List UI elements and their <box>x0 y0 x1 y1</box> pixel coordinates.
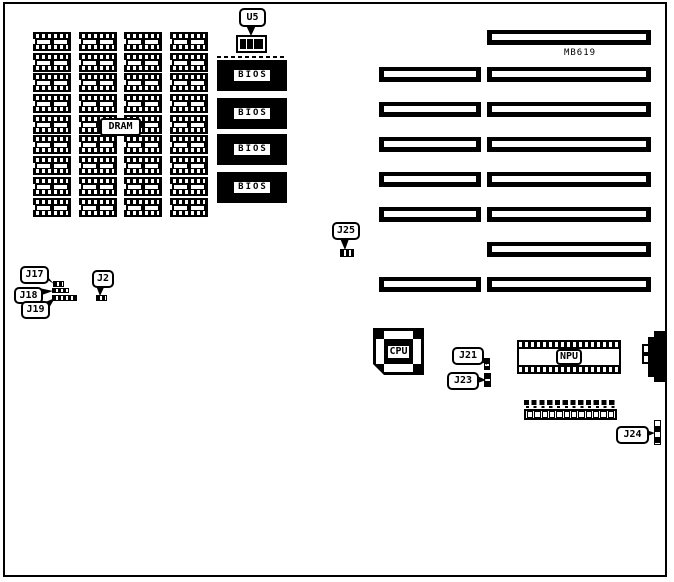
power-connector-pins <box>524 400 617 405</box>
npu-pins-bottom <box>519 367 619 372</box>
bios-label: BIOS <box>234 70 270 81</box>
dram-chip <box>124 73 162 92</box>
power-connector-socket <box>534 411 540 418</box>
cpu-corner <box>376 331 384 339</box>
dram-chip <box>33 198 71 217</box>
dram-chip <box>170 115 208 134</box>
power-connector-socket <box>586 411 592 418</box>
dram-chip <box>170 177 208 196</box>
expansion-slot <box>487 67 651 82</box>
expansion-slot <box>379 207 481 222</box>
dram-chip <box>79 73 117 92</box>
dram-chip <box>33 156 71 175</box>
expansion-slot <box>379 67 481 82</box>
dram-chip <box>124 198 162 217</box>
dram-chip <box>79 198 117 217</box>
dram-chip <box>79 156 117 175</box>
cpu-corner <box>413 364 421 372</box>
power-connector <box>524 400 617 420</box>
dram-chip <box>79 135 117 154</box>
cpu-corner <box>413 331 421 339</box>
dram-chip <box>124 135 162 154</box>
expansion-slot <box>379 137 481 152</box>
bios-chip: BIOS <box>217 134 287 165</box>
jumper-j18 <box>52 288 69 293</box>
expansion-slot <box>379 102 481 117</box>
bios-label: BIOS <box>234 182 270 193</box>
model-label: MB619 <box>552 49 608 58</box>
dram-chip <box>33 177 71 196</box>
dram-chip <box>33 94 71 113</box>
npu-body: NPU <box>519 349 619 365</box>
cpu-label: CPU <box>388 346 408 358</box>
jumper-label-j25: J25 <box>332 222 360 240</box>
bios-label: BIOS <box>234 108 270 119</box>
jumper-j24 <box>654 420 661 445</box>
power-connector-sockets <box>524 409 617 420</box>
power-connector-socket <box>542 411 548 418</box>
dram-chip <box>79 177 117 196</box>
dram-chip <box>124 94 162 113</box>
dram-chip <box>124 156 162 175</box>
expansion-slot <box>487 102 651 117</box>
dram-chip <box>170 94 208 113</box>
dram-chip <box>170 156 208 175</box>
keyboard-connector-pin <box>642 354 650 364</box>
expansion-slot <box>487 277 651 292</box>
jumper-label-j23: J23 <box>447 372 479 390</box>
bios-chip: BIOS <box>217 172 287 203</box>
keyboard-connector <box>654 376 666 382</box>
npu-pins-top <box>519 342 619 347</box>
expansion-slot <box>487 30 651 45</box>
power-connector-socket <box>527 411 533 418</box>
dram-label: DRAM <box>100 118 141 136</box>
dram-chip <box>79 32 117 51</box>
expansion-slot <box>379 277 481 292</box>
dram-chip <box>33 32 71 51</box>
jumper-label-j17: J17 <box>20 266 49 284</box>
jumper-j2 <box>96 295 107 301</box>
dram-chip <box>33 73 71 92</box>
dram-chip <box>170 53 208 72</box>
power-connector-socket <box>600 411 606 418</box>
jumper-label-j19: J19 <box>21 301 50 319</box>
jumper-j21 <box>484 358 490 370</box>
jumper-label-j21: J21 <box>452 347 484 365</box>
npu-label: NPU <box>556 349 582 365</box>
cpu-body: CPU <box>384 339 413 364</box>
power-connector-socket <box>556 411 562 418</box>
bios-label: BIOS <box>234 144 270 155</box>
dram-chip <box>170 198 208 217</box>
dram-chip <box>79 53 117 72</box>
expansion-slot <box>487 172 651 187</box>
expansion-slot <box>487 242 651 257</box>
power-connector-socket <box>593 411 599 418</box>
power-connector-socket <box>608 411 614 418</box>
keyboard-connector-pin <box>642 344 650 354</box>
expansion-slot <box>379 172 481 187</box>
power-connector-socket <box>549 411 555 418</box>
dram-chip <box>124 177 162 196</box>
dram-chip <box>33 135 71 154</box>
cpu-chip: CPU <box>373 328 424 375</box>
jumper-j17 <box>53 281 64 287</box>
u5-block <box>240 39 246 49</box>
dram-chip <box>170 73 208 92</box>
dram-chip <box>170 32 208 51</box>
u5-component <box>236 35 267 53</box>
dram-chip <box>33 115 71 134</box>
npu-socket: NPU <box>517 340 621 374</box>
dram-chip <box>79 94 117 113</box>
dram-chip <box>170 135 208 154</box>
bios-chip: BIOS <box>217 98 287 129</box>
jumper-label-j2: J2 <box>92 270 114 288</box>
jumper-j19 <box>52 295 77 301</box>
keyboard-connector <box>648 337 666 377</box>
jumper-j25 <box>340 249 354 257</box>
dram-chip <box>124 53 162 72</box>
u5-block <box>254 39 263 49</box>
bios-chip: BIOS <box>217 60 287 91</box>
power-connector-socket <box>564 411 570 418</box>
u5-label: U5 <box>239 8 266 27</box>
power-connector-socket <box>578 411 584 418</box>
jumper-label-j24: J24 <box>616 426 649 444</box>
power-connector-dashes <box>524 406 617 408</box>
power-connector-socket <box>571 411 577 418</box>
bios-window-dashed-line <box>217 56 287 58</box>
jumper-j23 <box>484 373 491 387</box>
expansion-slot <box>487 137 651 152</box>
u5-block <box>247 39 253 49</box>
dram-chip <box>33 53 71 72</box>
motherboard-diagram: DRAM U5 BIOSBIOSBIOSBIOS MB619 J25 CPU J… <box>0 0 674 582</box>
dram-chip <box>124 32 162 51</box>
expansion-slot <box>487 207 651 222</box>
